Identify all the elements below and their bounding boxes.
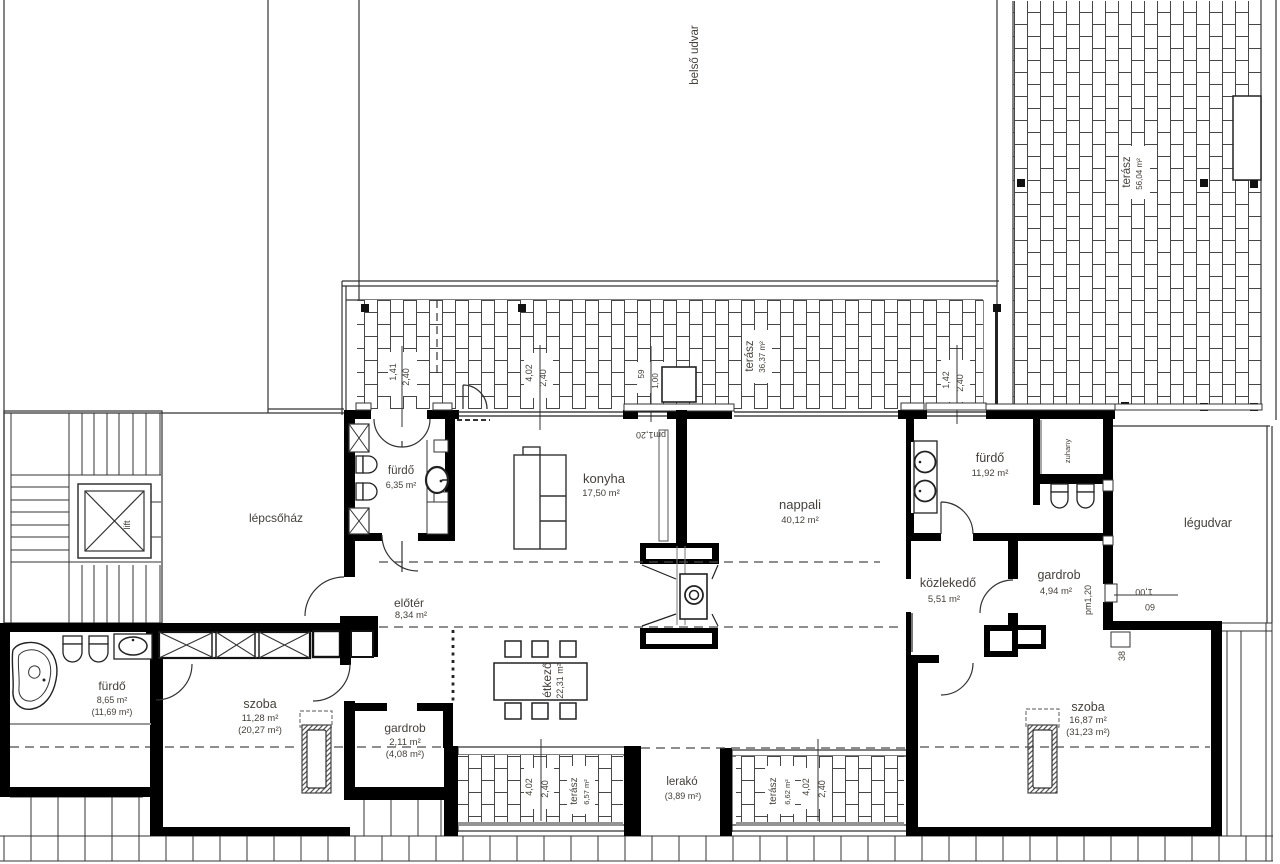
svg-text:6,35 m²: 6,35 m² <box>386 480 417 490</box>
svg-text:szoba: szoba <box>1071 700 1104 714</box>
svg-text:fürdő: fürdő <box>976 451 1005 465</box>
svg-text:2,40: 2,40 <box>401 368 411 386</box>
svg-text:2,40: 2,40 <box>955 374 965 392</box>
svg-text:gardrob: gardrob <box>1037 568 1080 582</box>
svg-text:gardrob: gardrob <box>384 721 426 735</box>
svg-text:(31,23 m²): (31,23 m²) <box>1066 727 1110 738</box>
svg-text:40,12 m²: 40,12 m² <box>781 515 819 526</box>
svg-text:lift: lift <box>122 520 132 529</box>
svg-text:16,87 m²: 16,87 m² <box>1069 715 1107 726</box>
svg-text:belső udvar: belső udvar <box>689 25 701 85</box>
svg-text:1,42: 1,42 <box>941 371 951 389</box>
svg-text:8,34 m²: 8,34 m² <box>395 610 427 621</box>
svg-text:lépcsőház: lépcsőház <box>249 511 303 525</box>
svg-text:2,40: 2,40 <box>817 780 827 798</box>
svg-text:56,04 m²: 56,04 m² <box>1135 158 1144 190</box>
svg-text:terász: terász <box>569 777 580 804</box>
svg-text:22,31 m²: 22,31 m² <box>555 663 565 699</box>
svg-text:4,02: 4,02 <box>524 778 534 796</box>
svg-text:lerakó: lerakó <box>666 776 697 788</box>
svg-text:fürdő: fürdő <box>98 679 126 693</box>
svg-text:4,02: 4,02 <box>801 778 811 796</box>
svg-text:36,37 m²: 36,37 m² <box>758 341 767 373</box>
svg-text:6,62 m²: 6,62 m² <box>783 779 792 805</box>
svg-text:terász: terász <box>768 777 779 804</box>
svg-text:nappali: nappali <box>779 497 821 512</box>
svg-text:(4,08 m²): (4,08 m²) <box>386 749 425 760</box>
svg-text:pm1,20: pm1,20 <box>1083 585 1093 615</box>
svg-text:terász: terász <box>1121 156 1133 188</box>
svg-text:11,92 m²: 11,92 m² <box>972 468 1009 479</box>
svg-text:előtér: előtér <box>394 596 424 610</box>
svg-text:2,40: 2,40 <box>540 780 550 798</box>
svg-text:pm1,20: pm1,20 <box>636 430 666 440</box>
svg-text:1,00: 1,00 <box>1135 587 1153 597</box>
svg-text:légudvar: légudvar <box>1184 516 1232 530</box>
svg-text:(20,27 m²): (20,27 m²) <box>238 725 282 736</box>
svg-text:1,41: 1,41 <box>388 363 398 381</box>
svg-text:1,00: 1,00 <box>651 373 660 389</box>
svg-text:17,50 m²: 17,50 m² <box>582 488 620 499</box>
svg-text:(3,89 m²): (3,89 m²) <box>665 791 702 801</box>
svg-text:2,40: 2,40 <box>538 369 548 387</box>
svg-text:38: 38 <box>1117 651 1127 661</box>
svg-text:(11,69 m²): (11,69 m²) <box>92 707 133 717</box>
svg-text:konyha: konyha <box>583 471 626 486</box>
svg-text:4,94 m²: 4,94 m² <box>1040 586 1072 597</box>
svg-text:5,51 m²: 5,51 m² <box>928 594 960 605</box>
svg-text:fürdő: fürdő <box>388 465 414 477</box>
svg-text:11,28 m²: 11,28 m² <box>242 713 279 724</box>
svg-text:étkező: étkező <box>540 662 554 698</box>
svg-text:4,02: 4,02 <box>524 364 534 382</box>
svg-text:59: 59 <box>637 369 646 378</box>
svg-text:6,57 m²: 6,57 m² <box>582 779 591 805</box>
svg-text:terász: terász <box>744 340 756 372</box>
svg-text:8,65 m²: 8,65 m² <box>97 695 128 705</box>
svg-text:szoba: szoba <box>243 697 276 711</box>
svg-text:zuhany: zuhany <box>1063 439 1072 463</box>
svg-text:közlekedő: közlekedő <box>920 576 976 590</box>
svg-text:60: 60 <box>1145 602 1155 612</box>
